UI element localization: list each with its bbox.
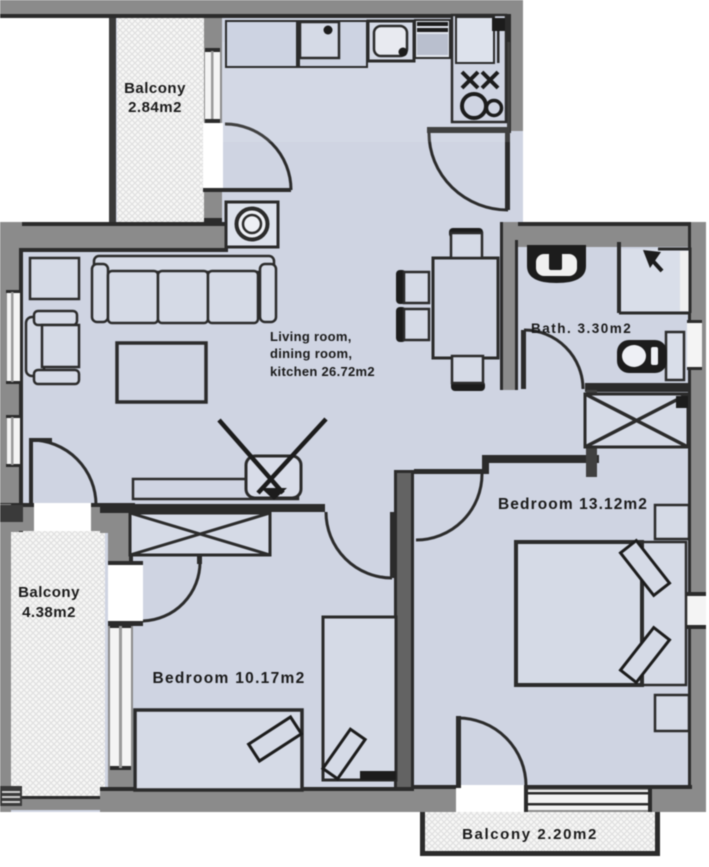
- svg-text:Bedroom 10.17m2: Bedroom 10.17m2: [152, 670, 305, 687]
- svg-text:Balcony 2.20m2: Balcony 2.20m2: [462, 826, 598, 843]
- svg-text:dining room,: dining room,: [270, 346, 352, 361]
- svg-text:Living room,: Living room,: [270, 329, 352, 344]
- svg-text:Balcony: Balcony: [18, 584, 80, 601]
- svg-text:Bedroom 13.12m2: Bedroom 13.12m2: [498, 496, 648, 513]
- svg-text:4.38m2: 4.38m2: [22, 604, 76, 621]
- svg-text:Balcony: Balcony: [124, 80, 186, 97]
- svg-text:kitchen 26.72m2: kitchen 26.72m2: [270, 364, 375, 379]
- svg-text:Bath. 3.30m2: Bath. 3.30m2: [531, 321, 632, 336]
- svg-text:2.84m2: 2.84m2: [128, 99, 182, 116]
